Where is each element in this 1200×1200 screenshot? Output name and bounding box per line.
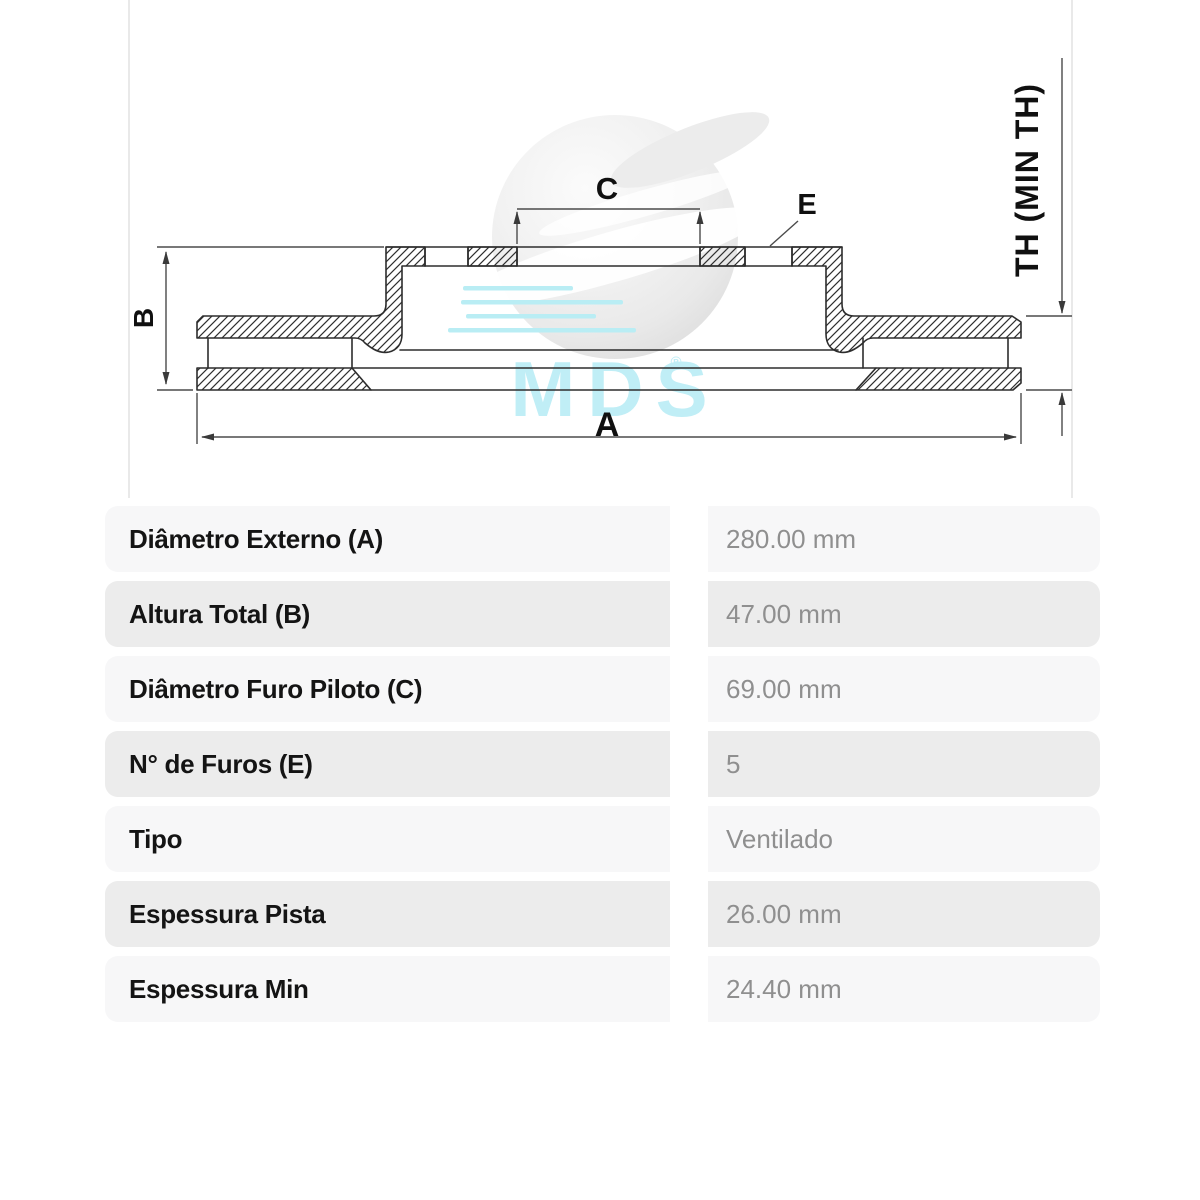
dim-label-c: C — [596, 171, 618, 206]
spec-value: 280.00 mm — [708, 506, 1100, 572]
product-page: MDS ® — [0, 0, 1200, 1200]
brake-disc-diagram: MDS ® — [0, 0, 1200, 500]
right-lower-plate — [856, 368, 1021, 390]
spec-label: Tipo — [105, 806, 670, 872]
spec-row-tipo: Tipo Ventilado — [105, 806, 1100, 872]
dim-label-e: E — [797, 189, 816, 221]
left-lower-plate — [197, 368, 371, 390]
left-wall-and-upper-plate — [197, 247, 425, 352]
spec-label: Altura Total (B) — [105, 581, 670, 647]
spec-value: 69.00 mm — [708, 656, 1100, 722]
spec-label: N° de Furos (E) — [105, 731, 670, 797]
spec-row-diametro-furo-piloto: Diâmetro Furo Piloto (C) 69.00 mm — [105, 656, 1100, 722]
spec-value: 47.00 mm — [708, 581, 1100, 647]
spec-row-espessura-min: Espessura Min 24.40 mm — [105, 956, 1100, 1022]
dim-label-b: B — [128, 308, 159, 328]
spec-value: 5 — [708, 731, 1100, 797]
spec-label: Espessura Min — [105, 956, 670, 1022]
dim-label-th: TH (MIN TH) — [1009, 83, 1045, 277]
right-wall-and-upper-plate — [792, 247, 1021, 352]
spec-label: Espessura Pista — [105, 881, 670, 947]
spec-label: Diâmetro Furo Piloto (C) — [105, 656, 670, 722]
spec-row-espessura-pista: Espessura Pista 26.00 mm — [105, 881, 1100, 947]
spec-value: Ventilado — [708, 806, 1100, 872]
product-image-panel: MDS ® — [0, 0, 1200, 500]
spec-row-numero-de-furos: N° de Furos (E) 5 — [105, 731, 1100, 797]
dim-label-a: A — [595, 406, 620, 444]
spec-row-altura-total: Altura Total (B) 47.00 mm — [105, 581, 1100, 647]
spec-label: Diâmetro Externo (A) — [105, 506, 670, 572]
spec-value: 24.40 mm — [708, 956, 1100, 1022]
spec-value: 26.00 mm — [708, 881, 1100, 947]
spec-row-diametro-externo: Diâmetro Externo (A) 280.00 mm — [105, 506, 1100, 572]
spec-table: Diâmetro Externo (A) 280.00 mm Altura To… — [105, 506, 1100, 1022]
